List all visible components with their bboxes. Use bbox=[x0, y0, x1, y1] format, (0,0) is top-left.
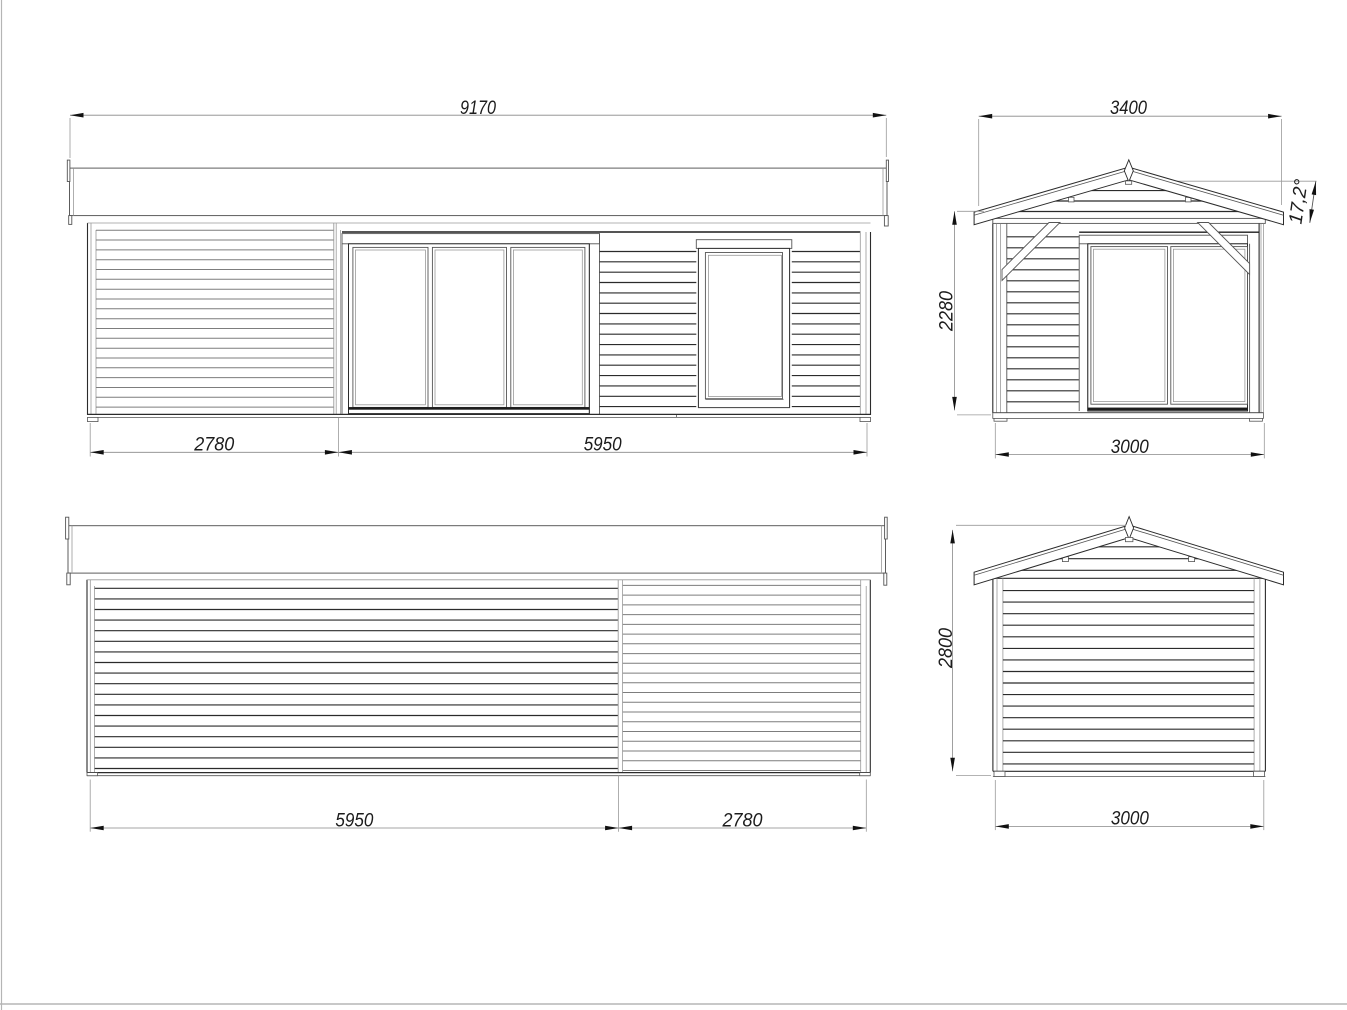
svg-text:9170: 9170 bbox=[460, 98, 496, 119]
svg-text:2780: 2780 bbox=[193, 435, 234, 456]
svg-text:3000: 3000 bbox=[1111, 809, 1149, 830]
svg-text:2780: 2780 bbox=[722, 810, 763, 831]
svg-text:3000: 3000 bbox=[1111, 437, 1149, 458]
svg-text:2800: 2800 bbox=[936, 628, 957, 669]
svg-text:5950: 5950 bbox=[584, 435, 622, 456]
svg-text:2280: 2280 bbox=[937, 291, 958, 332]
svg-text:5950: 5950 bbox=[335, 810, 373, 831]
svg-text:3400: 3400 bbox=[1110, 98, 1147, 119]
